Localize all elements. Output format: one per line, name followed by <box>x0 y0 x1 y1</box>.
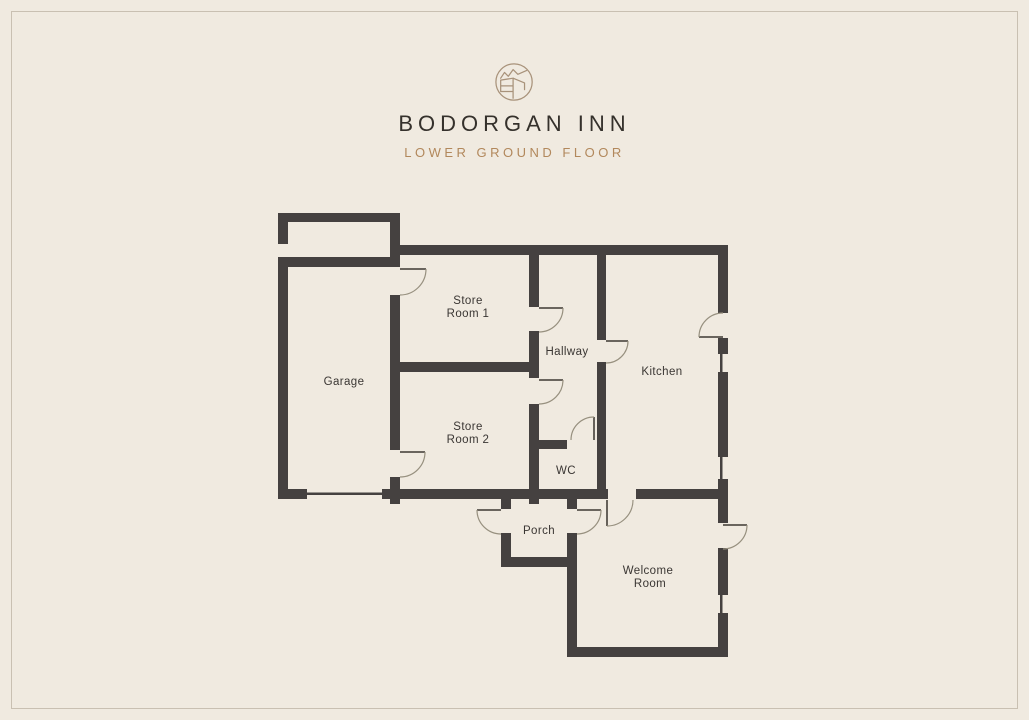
door-porch-welcome <box>577 510 601 534</box>
wall-store2-wc-left <box>529 404 539 504</box>
room-label-store2-line1: Store <box>453 421 483 433</box>
door-store2-hallway <box>539 380 563 404</box>
door-garage-store2 <box>400 452 425 477</box>
door-garage-store1 <box>400 269 426 295</box>
wall-welcome-right-2 <box>718 548 728 593</box>
wall-hall-kitchen-lower <box>597 362 606 499</box>
wall-hall-kitchen-upper <box>597 245 606 340</box>
wall-porch-bottom <box>501 557 577 567</box>
door-kitchen-exterior <box>699 313 723 337</box>
window-kitchen-1 <box>718 352 728 374</box>
wall-wc-top <box>539 440 567 449</box>
door-store1-hallway <box>539 308 563 332</box>
room-label-store2-line2: Room 2 <box>447 434 490 446</box>
door-wc <box>571 417 594 440</box>
door-kitchen-welcome <box>607 500 633 526</box>
floor-plan: Garage Store Room 1 Hallway Kitchen Stor… <box>0 0 1029 720</box>
door-porch-exterior <box>477 510 501 534</box>
wall-notch-left-stub <box>278 213 288 244</box>
wall-notch-top <box>278 213 398 222</box>
window-welcome-room <box>718 593 728 615</box>
wall-garage-store-low <box>390 477 400 504</box>
room-label-wc: WC <box>556 465 576 477</box>
garage-door-line <box>305 493 382 496</box>
wall-welcome-bottom <box>567 647 728 657</box>
wall-welcome-right-3 <box>718 615 728 657</box>
room-label-garage: Garage <box>324 376 365 388</box>
room-label-store1-line2: Room 1 <box>447 308 490 320</box>
room-label-welcome-line2: Room <box>634 578 666 590</box>
wall-garage-store <box>390 295 400 450</box>
wall-bottom-right <box>636 489 728 499</box>
wall-top-main <box>398 245 728 255</box>
wall-kitchen-right-1 <box>718 245 728 313</box>
wall-kitchen-right-2 <box>718 338 728 352</box>
wall-garage-left <box>278 257 288 499</box>
window-kitchen-2 <box>718 455 728 481</box>
room-label-porch: Porch <box>523 525 555 537</box>
wall-porch-right-upper <box>567 489 577 509</box>
wall-porch-left-upper <box>501 489 511 509</box>
wall-store-divider <box>390 362 537 372</box>
wall-garage-bottom-stub <box>278 489 307 499</box>
door-welcome-exterior <box>723 525 747 549</box>
wall-welcome-left <box>567 533 577 657</box>
door-hallway-kitchen <box>606 341 628 363</box>
room-label-welcome-line1: Welcome <box>623 565 674 577</box>
wall-store1-hall-upper <box>529 245 539 307</box>
walls-layer <box>278 213 728 657</box>
wall-kitchen-right-3 <box>718 374 728 455</box>
wall-garage-top <box>278 257 400 267</box>
room-label-hallway: Hallway <box>545 346 588 358</box>
room-label-kitchen: Kitchen <box>641 366 682 378</box>
wall-kitchen-right-4 <box>718 481 728 499</box>
room-label-store1-line1: Store <box>453 295 483 307</box>
wall-welcome-right-1 <box>718 499 728 523</box>
